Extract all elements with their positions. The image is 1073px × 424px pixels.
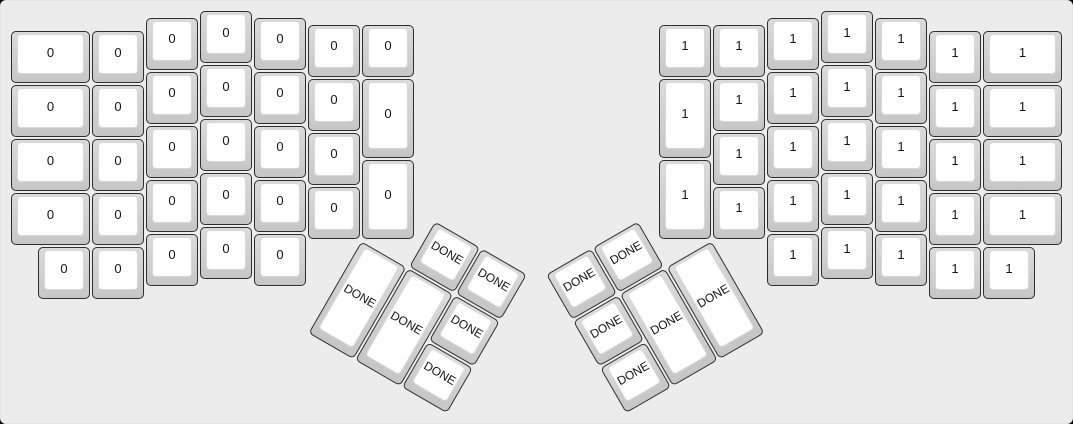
keycap-top: 1	[881, 237, 921, 277]
key-left-15[interactable]: 0	[92, 139, 144, 191]
keycap-top: 1	[935, 142, 975, 182]
keycap-top: 1	[935, 34, 975, 74]
key-right-26[interactable]: 1	[983, 193, 1062, 245]
key-right-6[interactable]: 1	[983, 31, 1062, 83]
keycap-top: 0	[44, 250, 84, 290]
key-legend: 1	[951, 207, 958, 222]
keycap-top: 1	[719, 28, 759, 68]
key-right-14[interactable]: 1	[659, 160, 711, 239]
key-legend: 0	[168, 193, 175, 208]
key-legend: 0	[168, 247, 175, 262]
keycap-top: 1	[989, 196, 1056, 236]
keycap-top: 0	[206, 230, 246, 270]
key-legend: 0	[330, 146, 337, 161]
key-legend: 1	[735, 38, 742, 53]
keycap-top: 1	[989, 34, 1056, 74]
key-right-15[interactable]: 1	[713, 133, 765, 185]
key-legend: 0	[114, 153, 121, 168]
keycap-top: 1	[827, 176, 867, 216]
key-right-11[interactable]: 1	[875, 72, 927, 124]
keycap-top: 0	[260, 21, 300, 61]
keycap-top: 1	[989, 88, 1056, 128]
key-right-19[interactable]: 1	[929, 139, 981, 191]
keycap-top: 1	[881, 183, 921, 223]
key-legend: DONE	[561, 265, 598, 294]
key-right-23[interactable]: 1	[821, 173, 873, 225]
key-legend: DONE	[388, 308, 425, 337]
keycap-top: 0	[152, 183, 192, 223]
keycap-top: 0	[368, 82, 408, 149]
keycap-top: 0	[206, 14, 246, 54]
key-legend: 0	[47, 207, 54, 222]
key-left-3[interactable]: 0	[200, 11, 252, 63]
key-legend: 1	[951, 261, 958, 276]
key-legend: 1	[735, 146, 742, 161]
key-legend: 0	[276, 193, 283, 208]
key-right-31[interactable]: 1	[983, 247, 1035, 299]
key-legend: 1	[681, 187, 688, 202]
keycap-top: 1	[827, 68, 867, 108]
keycap-top: 0	[98, 142, 138, 182]
key-left-8[interactable]: 0	[92, 85, 144, 137]
keycap-top: 1	[935, 196, 975, 236]
key-legend: 1	[1019, 153, 1026, 168]
keycap-top: 0	[152, 129, 192, 169]
key-legend: 1	[843, 187, 850, 202]
key-legend: 0	[222, 79, 229, 94]
keycap-top: DONE	[419, 227, 474, 282]
key-right-16[interactable]: 1	[767, 126, 819, 178]
key-legend: DONE	[429, 238, 466, 267]
key-right-13[interactable]: 1	[983, 85, 1062, 137]
keycap-top: 0	[368, 28, 408, 68]
key-legend: 1	[843, 79, 850, 94]
key-left-12[interactable]: 0	[308, 79, 360, 131]
key-left-21[interactable]: 0	[11, 193, 90, 245]
key-legend: 1	[789, 31, 796, 46]
key-left-31[interactable]: 0	[254, 234, 306, 286]
key-legend: 0	[276, 247, 283, 262]
key-left-17[interactable]: 0	[200, 119, 252, 171]
key-legend: 1	[897, 193, 904, 208]
key-legend: 0	[114, 261, 121, 276]
key-legend: 1	[951, 99, 958, 114]
key-left-28[interactable]: 0	[92, 247, 144, 299]
keycap-top: 1	[827, 230, 867, 270]
key-legend: 1	[843, 25, 850, 40]
keycap-top: 1	[773, 129, 813, 169]
key-legend: 1	[951, 45, 958, 60]
key-right-4[interactable]: 1	[875, 18, 927, 70]
key-right-3[interactable]: 1	[821, 11, 873, 63]
key-legend: DONE	[607, 238, 644, 267]
key-left-26[interactable]: 0	[308, 187, 360, 239]
key-right-18[interactable]: 1	[875, 126, 927, 178]
keycap-top: 0	[260, 183, 300, 223]
key-legend: DONE	[588, 311, 625, 340]
key-legend: 0	[276, 85, 283, 100]
key-legend: DONE	[341, 281, 378, 310]
keycap-top: 0	[98, 250, 138, 290]
key-legend: 1	[951, 153, 958, 168]
keycap-top: 1	[773, 183, 813, 223]
keycap-top: 0	[260, 75, 300, 115]
key-legend: 0	[114, 45, 121, 60]
keycap-top: 1	[935, 250, 975, 290]
key-right-25[interactable]: 1	[929, 193, 981, 245]
key-legend: 1	[1019, 207, 1026, 222]
key-legend: 1	[789, 193, 796, 208]
key-right-8[interactable]: 1	[713, 79, 765, 131]
keycap-top: 1	[665, 163, 705, 230]
key-legend: 0	[276, 139, 283, 154]
key-legend: 0	[276, 31, 283, 46]
keyboard-canvas: 00000000000000000000000000000000DONEDONE…	[0, 0, 1073, 424]
keycap-top: 0	[98, 88, 138, 128]
keycap-top: 0	[152, 237, 192, 277]
keycap-top: 0	[152, 21, 192, 61]
key-right-29[interactable]: 1	[875, 234, 927, 286]
keycap-top: 0	[17, 142, 84, 182]
key-right-9[interactable]: 1	[767, 72, 819, 124]
key-right-2[interactable]: 1	[767, 18, 819, 70]
key-right-7[interactable]: 1	[659, 79, 711, 158]
key-right-17[interactable]: 1	[821, 119, 873, 171]
key-left-13[interactable]: 0	[362, 79, 414, 158]
keycap-top: 0	[314, 136, 354, 176]
keycap-top: 0	[314, 190, 354, 230]
key-left-7[interactable]: 0	[11, 85, 90, 137]
key-legend: 1	[897, 31, 904, 46]
key-legend: 1	[897, 139, 904, 154]
keycap-top: 0	[17, 88, 84, 128]
keycap-top: 0	[314, 28, 354, 68]
key-left-25[interactable]: 0	[254, 180, 306, 232]
key-right-27[interactable]: 1	[767, 234, 819, 286]
keycap-top: DONE	[553, 254, 608, 309]
key-legend: DONE	[475, 265, 512, 294]
key-right-30[interactable]: 1	[929, 247, 981, 299]
key-right-12[interactable]: 1	[929, 85, 981, 137]
keycap-top: 1	[773, 75, 813, 115]
keycap-top: 1	[881, 21, 921, 61]
key-left-27[interactable]: 0	[38, 247, 90, 299]
keycap-top: 0	[206, 122, 246, 162]
key-left-2[interactable]: 0	[146, 18, 198, 70]
keycap-top: 1	[719, 82, 759, 122]
keycap-top: 0	[260, 237, 300, 277]
key-right-20[interactable]: 1	[983, 139, 1062, 191]
keycap-top: 0	[368, 163, 408, 230]
key-left-16[interactable]: 0	[146, 126, 198, 178]
keycap-top: 0	[98, 34, 138, 74]
key-legend: 1	[681, 106, 688, 121]
key-left-14[interactable]: 0	[11, 139, 90, 191]
key-legend: 1	[735, 200, 742, 215]
keycap-top: 1	[719, 136, 759, 176]
keycap-top: 0	[17, 34, 84, 74]
key-legend: 0	[384, 187, 391, 202]
key-legend: 1	[789, 139, 796, 154]
key-left-4[interactable]: 0	[254, 18, 306, 70]
key-left-29[interactable]: 0	[146, 234, 198, 286]
keycap-top: DONE	[466, 254, 521, 309]
key-legend: DONE	[648, 308, 685, 337]
key-left-30[interactable]: 0	[200, 227, 252, 279]
key-legend: DONE	[421, 358, 458, 387]
key-legend: DONE	[695, 281, 732, 310]
key-legend: 0	[384, 38, 391, 53]
key-legend: 0	[168, 139, 175, 154]
key-legend: 0	[384, 106, 391, 121]
key-legend: 0	[168, 31, 175, 46]
key-left-23[interactable]: 0	[146, 180, 198, 232]
key-left-10[interactable]: 0	[200, 65, 252, 117]
key-right-1[interactable]: 1	[713, 25, 765, 77]
key-legend: 0	[114, 99, 121, 114]
key-legend: 0	[222, 187, 229, 202]
keycap-top: 1	[773, 21, 813, 61]
key-legend: 1	[1005, 261, 1012, 276]
key-left-1[interactable]: 0	[92, 31, 144, 83]
key-legend: 0	[47, 153, 54, 168]
key-legend: DONE	[448, 311, 485, 340]
key-legend: 0	[47, 99, 54, 114]
key-legend: 0	[222, 25, 229, 40]
key-legend: 1	[1019, 45, 1026, 60]
keycap-top: 1	[827, 14, 867, 54]
key-legend: 0	[47, 45, 54, 60]
keycap-top: 1	[989, 142, 1056, 182]
key-right-21[interactable]: 1	[713, 187, 765, 239]
keycap-top: 0	[206, 68, 246, 108]
key-legend: DONE	[615, 358, 652, 387]
keycap-top: 0	[314, 82, 354, 122]
keycap-top: 0	[98, 196, 138, 236]
key-legend: 1	[897, 85, 904, 100]
keycap-top: DONE	[600, 227, 655, 282]
key-right-22[interactable]: 1	[767, 180, 819, 232]
key-legend: 1	[843, 133, 850, 148]
key-legend: 1	[735, 92, 742, 107]
key-legend: 1	[681, 38, 688, 53]
key-legend: 0	[330, 92, 337, 107]
keycap-top: 1	[935, 88, 975, 128]
key-legend: 0	[222, 133, 229, 148]
key-legend: 0	[168, 85, 175, 100]
key-right-28[interactable]: 1	[821, 227, 873, 279]
key-left-19[interactable]: 0	[308, 133, 360, 185]
key-right-0[interactable]: 1	[659, 25, 711, 77]
key-legend: 0	[60, 261, 67, 276]
keycap-top: 0	[206, 176, 246, 216]
key-left-0[interactable]: 0	[11, 31, 90, 83]
key-legend: 0	[114, 207, 121, 222]
key-left-6[interactable]: 0	[362, 25, 414, 77]
key-legend: 1	[843, 241, 850, 256]
key-legend: 0	[222, 241, 229, 256]
key-right-5[interactable]: 1	[929, 31, 981, 83]
key-legend: 0	[330, 38, 337, 53]
keycap-top: 1	[881, 129, 921, 169]
keycap-top: 1	[827, 122, 867, 162]
key-left-11[interactable]: 0	[254, 72, 306, 124]
keycap-top: 1	[881, 75, 921, 115]
keycap-top: 0	[152, 75, 192, 115]
keycap-top: 1	[665, 82, 705, 149]
key-legend: 1	[789, 85, 796, 100]
key-legend: 0	[330, 200, 337, 215]
key-legend: 1	[897, 247, 904, 262]
keycap-top: 1	[719, 190, 759, 230]
key-right-24[interactable]: 1	[875, 180, 927, 232]
key-left-18[interactable]: 0	[254, 126, 306, 178]
key-left-24[interactable]: 0	[200, 173, 252, 225]
keycap-top: 1	[773, 237, 813, 277]
keycap-top: 1	[989, 250, 1029, 290]
key-left-5[interactable]: 0	[308, 25, 360, 77]
key-legend: 1	[789, 247, 796, 262]
keycap-top: 0	[260, 129, 300, 169]
key-left-9[interactable]: 0	[146, 72, 198, 124]
key-right-10[interactable]: 1	[821, 65, 873, 117]
keycap-top: 0	[17, 196, 84, 236]
key-left-20[interactable]: 0	[362, 160, 414, 239]
key-left-22[interactable]: 0	[92, 193, 144, 245]
key-legend: 1	[1019, 99, 1026, 114]
keycap-top: 1	[665, 28, 705, 68]
